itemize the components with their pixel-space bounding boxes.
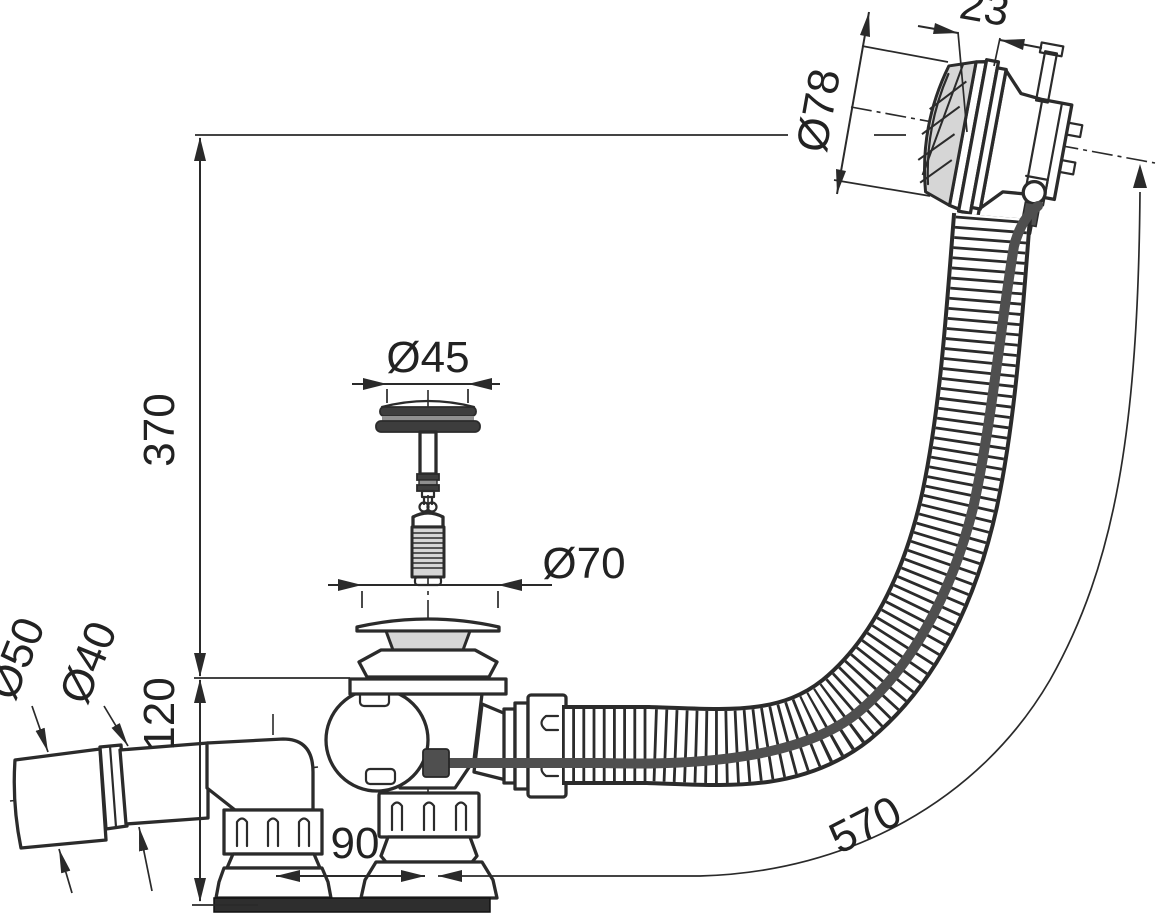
dim-d45: Ø45 — [352, 333, 500, 403]
strainer-gasket — [359, 650, 497, 677]
dim-d45-label: Ø45 — [386, 333, 469, 382]
plug-stem-upper — [420, 432, 436, 474]
dim-d70-label: Ø70 — [542, 539, 625, 588]
mounting-screw-lug — [1036, 51, 1057, 102]
dim-370: 370 — [135, 137, 206, 677]
waste-base — [361, 862, 497, 898]
dim-d70: Ø70 — [328, 539, 626, 608]
dim-d78-label: Ø78 — [787, 65, 850, 155]
dim-d50-label: Ø50 — [0, 611, 55, 706]
elbow-nut — [224, 810, 322, 854]
technical-drawing-page: 370 120 90 570 — [0, 0, 1157, 914]
bath-waste-overflow-drawing: 370 120 90 570 — [0, 0, 1157, 914]
thread-rod — [412, 527, 444, 577]
trap-sphere-housing — [326, 689, 428, 791]
hose-body — [562, 216, 992, 747]
elbow-skirt — [227, 854, 320, 868]
outlet-pipe — [120, 743, 208, 824]
dim-d40-label: Ø40 — [50, 615, 127, 710]
strainer-stack — [350, 619, 506, 694]
plug-assembly — [376, 401, 480, 585]
outlet-ring-2 — [515, 703, 528, 789]
thread-rod-cap — [413, 513, 443, 527]
corrugated-hose — [562, 216, 992, 747]
overflow-knob-assembly — [908, 24, 1096, 239]
waste-bottom-nut — [379, 793, 479, 837]
elbow-body — [207, 739, 313, 810]
dim-d50: Ø50 — [0, 611, 72, 893]
plug-cap-band — [380, 407, 476, 416]
strainer-chrome-band — [386, 631, 470, 650]
dim-370-label: 370 — [135, 393, 184, 466]
dim-23-label: 23 — [956, 0, 1013, 36]
elbow-base — [216, 868, 331, 898]
outlet-sleeve — [14, 749, 106, 848]
strainer-disc — [357, 619, 499, 631]
dim-90-label: 90 — [331, 819, 380, 868]
dim-120-label: 120 — [135, 677, 184, 750]
stem-coupling-1 — [417, 474, 439, 480]
waste-top-flange — [350, 679, 506, 694]
hose-nut — [528, 695, 566, 797]
mounting-screw-head — [1040, 42, 1063, 56]
cable-end-fitting — [423, 749, 449, 777]
waste-skirt — [381, 837, 477, 862]
